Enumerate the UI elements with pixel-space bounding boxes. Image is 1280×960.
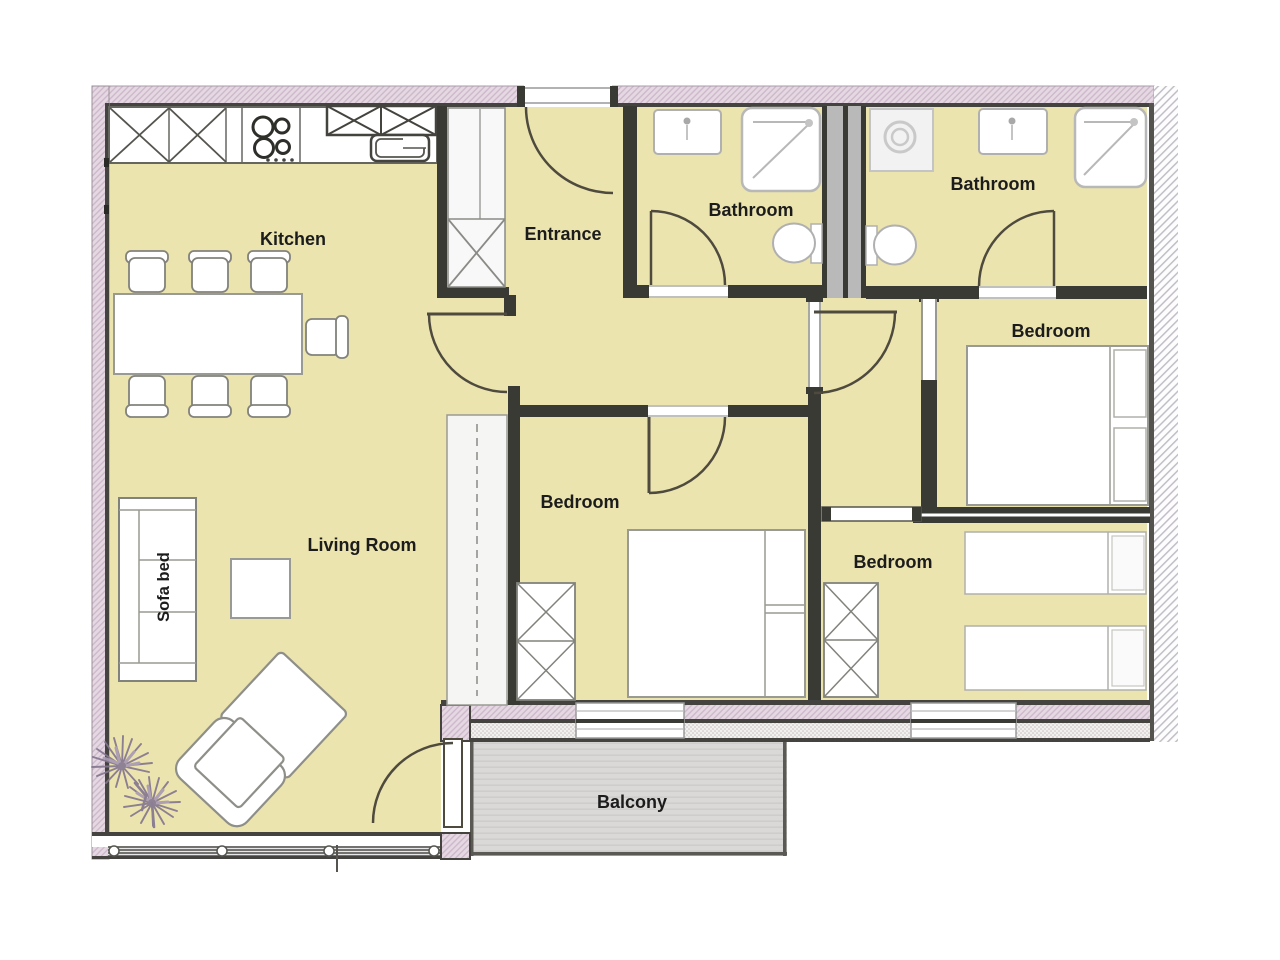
svg-text:Balcony: Balcony [597,792,667,812]
svg-text:Living Room: Living Room [308,535,417,555]
svg-text:Kitchen: Kitchen [260,229,326,249]
svg-text:Bedroom: Bedroom [1011,321,1090,341]
svg-text:Bedroom: Bedroom [853,552,932,572]
svg-text:Bathroom: Bathroom [951,174,1036,194]
svg-text:Bathroom: Bathroom [709,200,794,220]
svg-text:Entrance: Entrance [524,224,601,244]
svg-text:Bedroom: Bedroom [540,492,619,512]
svg-text:Sofa bed: Sofa bed [155,552,173,622]
